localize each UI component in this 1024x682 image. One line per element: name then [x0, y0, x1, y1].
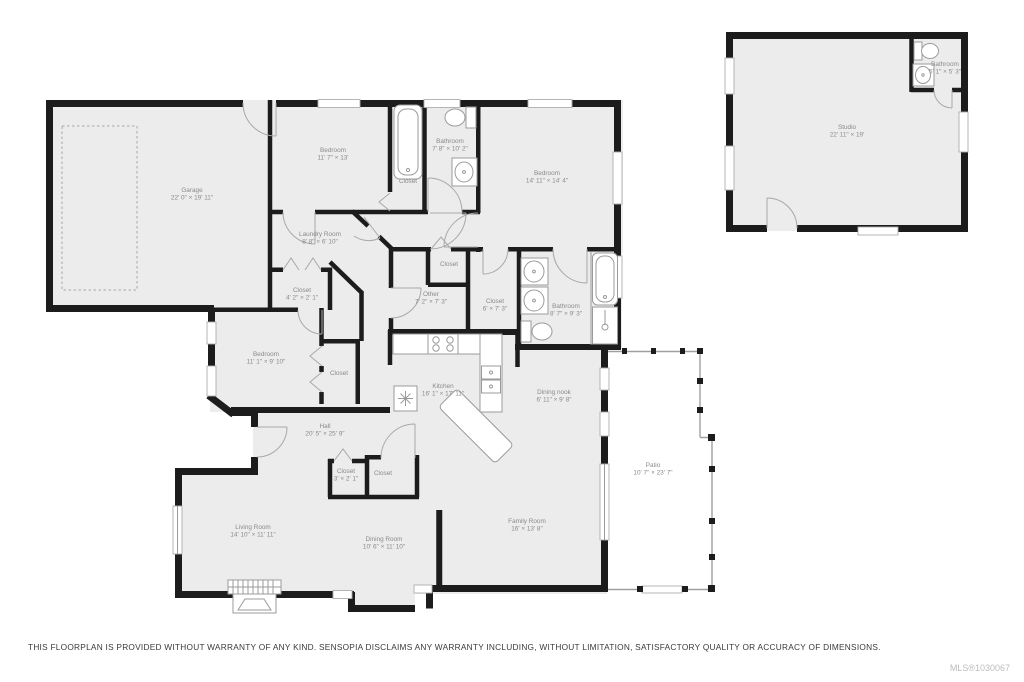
room-label-bathroom-studio: Bathroom5' 1" × 5' 3"	[929, 61, 961, 76]
floorplan-svg: Garage22' 0" × 19' 11"Bedroom11' 7" × 13…	[0, 0, 1024, 682]
bathtub-icon	[394, 105, 422, 179]
room-label-closet-1: Closet	[399, 178, 417, 185]
room-label-living-room: Living Room14' 10" × 11' 11"	[230, 524, 275, 539]
disclaimer-text: THIS FLOORPLAN IS PROVIDED WITHOUT WARRA…	[28, 642, 881, 652]
room-label-bathroom-1: Bathroom7' 8" × 10' 2"	[432, 138, 468, 153]
room-label-closet-4: Closet6' × 7' 3"	[483, 298, 507, 313]
sink-icon	[452, 158, 477, 186]
room-label-closet-bedroom-3: Closet	[330, 370, 348, 377]
sink-icon	[521, 258, 548, 285]
floorplan-image: Garage22' 0" × 19' 11"Bedroom11' 7" × 13…	[0, 0, 1024, 682]
room-label-patio: Patio10' 7" × 23' 7"	[633, 462, 672, 477]
bathtub-icon	[593, 253, 618, 305]
shower-icon	[593, 307, 618, 344]
toilet-icon	[445, 107, 476, 128]
sink-icon	[521, 287, 548, 314]
room-label-bathroom-2: Bathroom8' 7" × 9' 3"	[550, 303, 582, 318]
toilet-icon	[521, 321, 552, 342]
room-label-closet-6: Closet	[374, 470, 392, 477]
room-label-bedroom-1: Bedroom11' 7" × 13'	[317, 147, 348, 162]
toilet-icon	[914, 42, 939, 60]
room-label-dining-nook: Dining nook6' 11" × 9' 8"	[536, 389, 571, 404]
mls-number: MLS®1030067	[950, 663, 1010, 673]
room-label-closet-3: Closet	[440, 261, 458, 268]
fireplace-icon	[228, 580, 281, 613]
stove-icon	[428, 334, 458, 354]
room-label-laundry-room: Laundry Room8' 8" × 6' 10"	[299, 231, 341, 246]
double-sink-icon	[482, 366, 501, 393]
room-label-closet-5: Closet3' × 2' 1"	[334, 468, 358, 483]
refrigerator-icon	[394, 386, 417, 411]
room-label-family-room: Family Room16' × 13' 8"	[508, 518, 546, 533]
room-label-dining-room: Dining Room10' 6" × 11' 10"	[363, 536, 405, 551]
floor-areas	[47, 33, 967, 612]
